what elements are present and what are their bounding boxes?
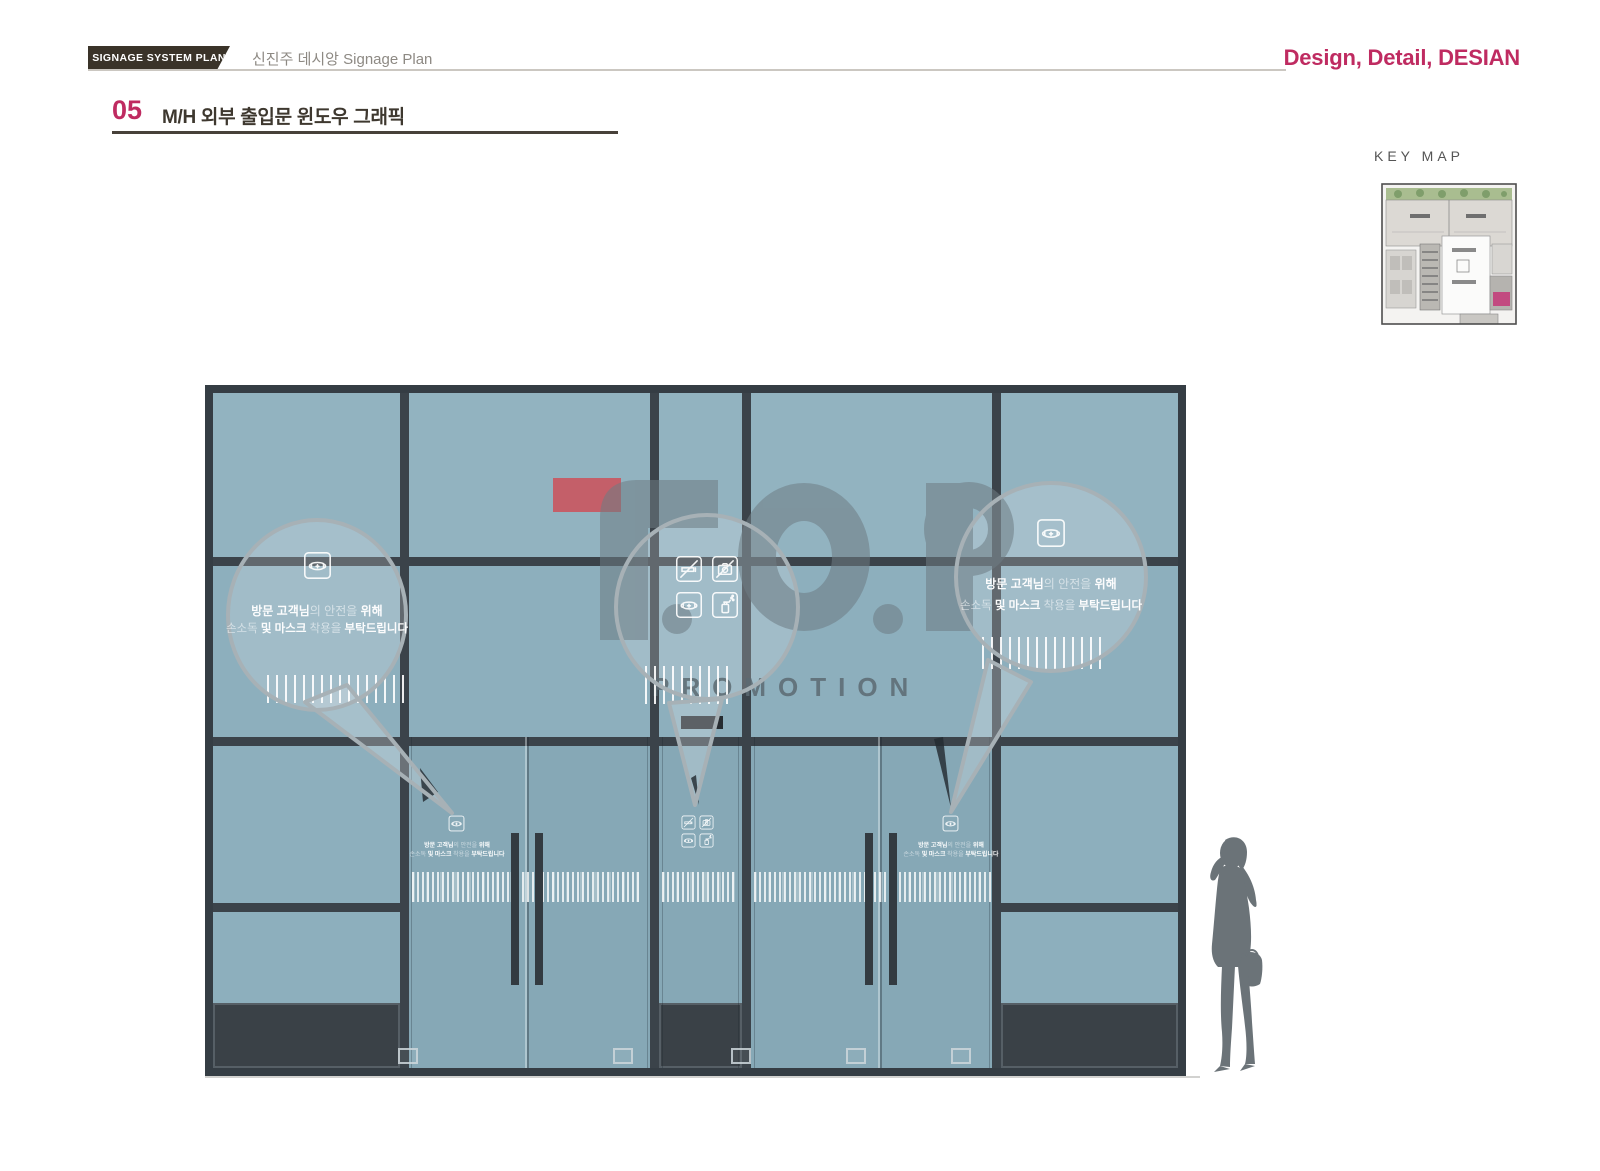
mask-icon: [449, 816, 464, 831]
bubble-right-line2: 손소독 및 마스크 착용을 부탁드립니다: [941, 597, 1161, 613]
keymap-landscape-band: [1386, 188, 1512, 200]
section-underline: [112, 131, 618, 134]
door-sticker-left-line2: 손소독 및 마스크 착용을 부탁드립니다: [382, 849, 532, 858]
key-map-label: KEY MAP: [1374, 148, 1464, 164]
page: { "header": { "badge": "SIGNAGE SYSTEM P…: [0, 0, 1600, 1171]
door-sticker-right-line1: 방문 고객님의 안전을 위해: [876, 840, 1026, 849]
mask-icon: [1038, 520, 1064, 546]
bubble-circle-center: [616, 515, 798, 699]
floor-line: [205, 1076, 1200, 1078]
no-smoking-icon: [677, 557, 702, 582]
bubble-right-line1: 방문 고객님의 안전을 위해: [951, 575, 1151, 592]
keymap-highlight-area: [1493, 292, 1510, 306]
sanitizer-icon: [700, 834, 713, 847]
no-camera-icon: [713, 557, 738, 582]
door-sticker-left-line1: 방문 고객님의 안전을 위해: [382, 840, 532, 849]
key-map-floorplan: [1368, 176, 1530, 328]
scale-figure-silhouette: [1192, 836, 1274, 1074]
mask-icon: [682, 834, 695, 847]
sanitizer-icon: [713, 593, 738, 618]
no-camera-icon: [700, 816, 713, 829]
page-title: M/H 외부 출입문 윈도우 그래픽: [162, 102, 405, 129]
section-number: 05: [112, 95, 142, 126]
mask-icon: [943, 816, 958, 831]
storefront-elevation: PROMOTION: [205, 385, 1186, 1076]
mask-icon: [305, 553, 330, 578]
signage-system-plan-badge: SIGNAGE SYSTEM PLAN: [88, 46, 230, 70]
door-sticker-right-line2: 손소독 및 마스크 착용을 부탁드립니다: [876, 849, 1026, 858]
callout-bubble-outlines: [205, 385, 1186, 1076]
document-subtitle: 신진주 데시앙 Signage Plan: [252, 48, 432, 69]
no-smoking-icon: [682, 816, 695, 829]
header-rule: [88, 69, 1286, 71]
bubble-tail-right: [951, 660, 1031, 812]
bubble-left-line1: 방문 고객님의 안전을 위해: [217, 602, 417, 619]
bubble-left-line2: 손소독 및 마스크 착용을 부탁드립니다: [207, 620, 427, 636]
brand-slogan: Design, Detail, DESIAN: [1260, 45, 1520, 71]
mask-icon: [677, 593, 702, 618]
